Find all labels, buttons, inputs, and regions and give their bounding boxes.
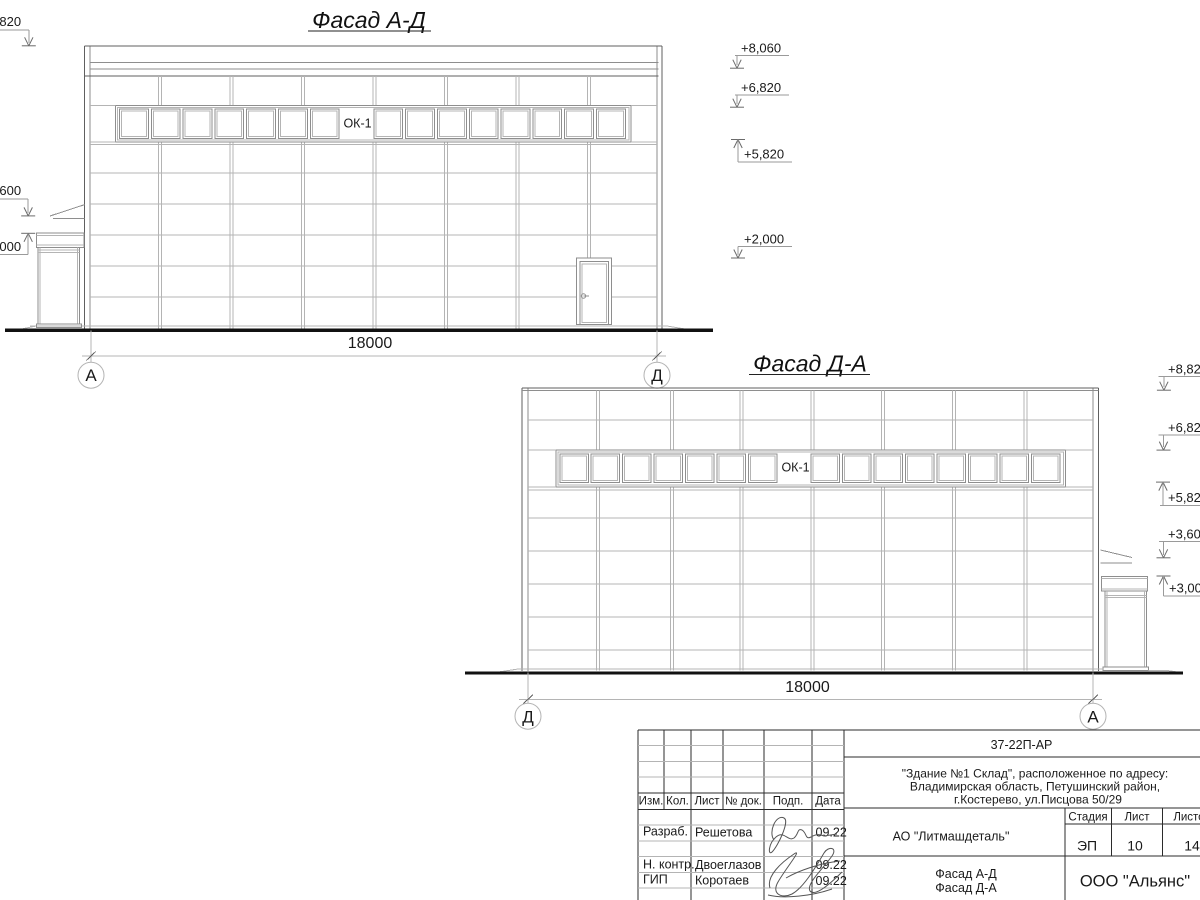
svg-text:+5,820: +5,820	[744, 147, 784, 162]
svg-text:Подп.: Подп.	[773, 796, 804, 808]
svg-text:Д: Д	[522, 707, 534, 726]
svg-text:Фасад Д-А: Фасад Д-А	[753, 351, 867, 377]
svg-text:Владимирская область, Петушинс: Владимирская область, Петушинский район,	[910, 779, 1160, 793]
svg-text:Д: Д	[651, 366, 663, 385]
svg-text:Изм.: Изм.	[639, 796, 664, 808]
svg-text:Фасад Д-А: Фасад Д-А	[935, 881, 997, 895]
svg-text:+8,820: +8,820	[0, 14, 21, 29]
svg-text:+8,820: +8,820	[1168, 361, 1200, 376]
svg-text:+8,060: +8,060	[741, 41, 781, 56]
svg-text:14: 14	[1184, 838, 1200, 854]
svg-text:09.22: 09.22	[816, 874, 847, 888]
svg-text:+6,820: +6,820	[1168, 420, 1200, 435]
svg-text:09.22: 09.22	[816, 826, 847, 840]
svg-text:Коротаев: Коротаев	[695, 874, 749, 888]
svg-text:10: 10	[1127, 838, 1143, 854]
svg-text:Разраб.: Разраб.	[643, 825, 688, 839]
svg-text:ОК-1: ОК-1	[781, 460, 809, 474]
svg-text:Двоеглазов: Двоеглазов	[695, 858, 762, 872]
svg-text:+3,600: +3,600	[0, 183, 21, 198]
svg-text:ООО "Альянс": ООО "Альянс"	[1080, 873, 1190, 891]
svg-text:Листов: Листов	[1173, 811, 1200, 823]
svg-text:АО "Литмашдеталь": АО "Литмашдеталь"	[893, 830, 1010, 844]
svg-text:37-22П-АР: 37-22П-АР	[991, 738, 1053, 752]
svg-text:Фасад А-Д: Фасад А-Д	[312, 7, 426, 33]
svg-text:№ док.: № док.	[725, 796, 762, 808]
svg-text:ЭП: ЭП	[1077, 838, 1097, 854]
svg-text:"Здание №1 Склад", расположенн: "Здание №1 Склад", расположенное по адре…	[902, 766, 1169, 780]
svg-text:+3,000: +3,000	[0, 239, 21, 254]
svg-text:Лист: Лист	[1125, 811, 1151, 823]
svg-text:+6,820: +6,820	[741, 80, 781, 95]
svg-text:ОК-1: ОК-1	[343, 116, 371, 130]
svg-text:ГИП: ГИП	[643, 873, 668, 887]
svg-text:г.Костерево, ул.Писцова 50/29: г.Костерево, ул.Писцова 50/29	[954, 792, 1122, 806]
svg-text:18000: 18000	[785, 679, 830, 696]
svg-text:Фасад А-Д: Фасад А-Д	[935, 867, 997, 881]
svg-text:Кол.: Кол.	[666, 796, 689, 808]
svg-text:Лист: Лист	[695, 796, 721, 808]
svg-text:Дата: Дата	[815, 796, 841, 808]
svg-text:18000: 18000	[348, 335, 393, 352]
svg-text:+3,000: +3,000	[1169, 581, 1200, 596]
svg-text:Н. контр.: Н. контр.	[643, 858, 695, 872]
svg-text:+5,820: +5,820	[1168, 490, 1200, 505]
svg-text:А: А	[1087, 707, 1099, 726]
svg-text:Решетова: Решетова	[695, 826, 752, 840]
svg-text:+2,000: +2,000	[744, 231, 784, 246]
svg-text:+3,600: +3,600	[1168, 527, 1200, 542]
svg-text:Стадия: Стадия	[1068, 811, 1107, 823]
svg-text:А: А	[85, 366, 97, 385]
